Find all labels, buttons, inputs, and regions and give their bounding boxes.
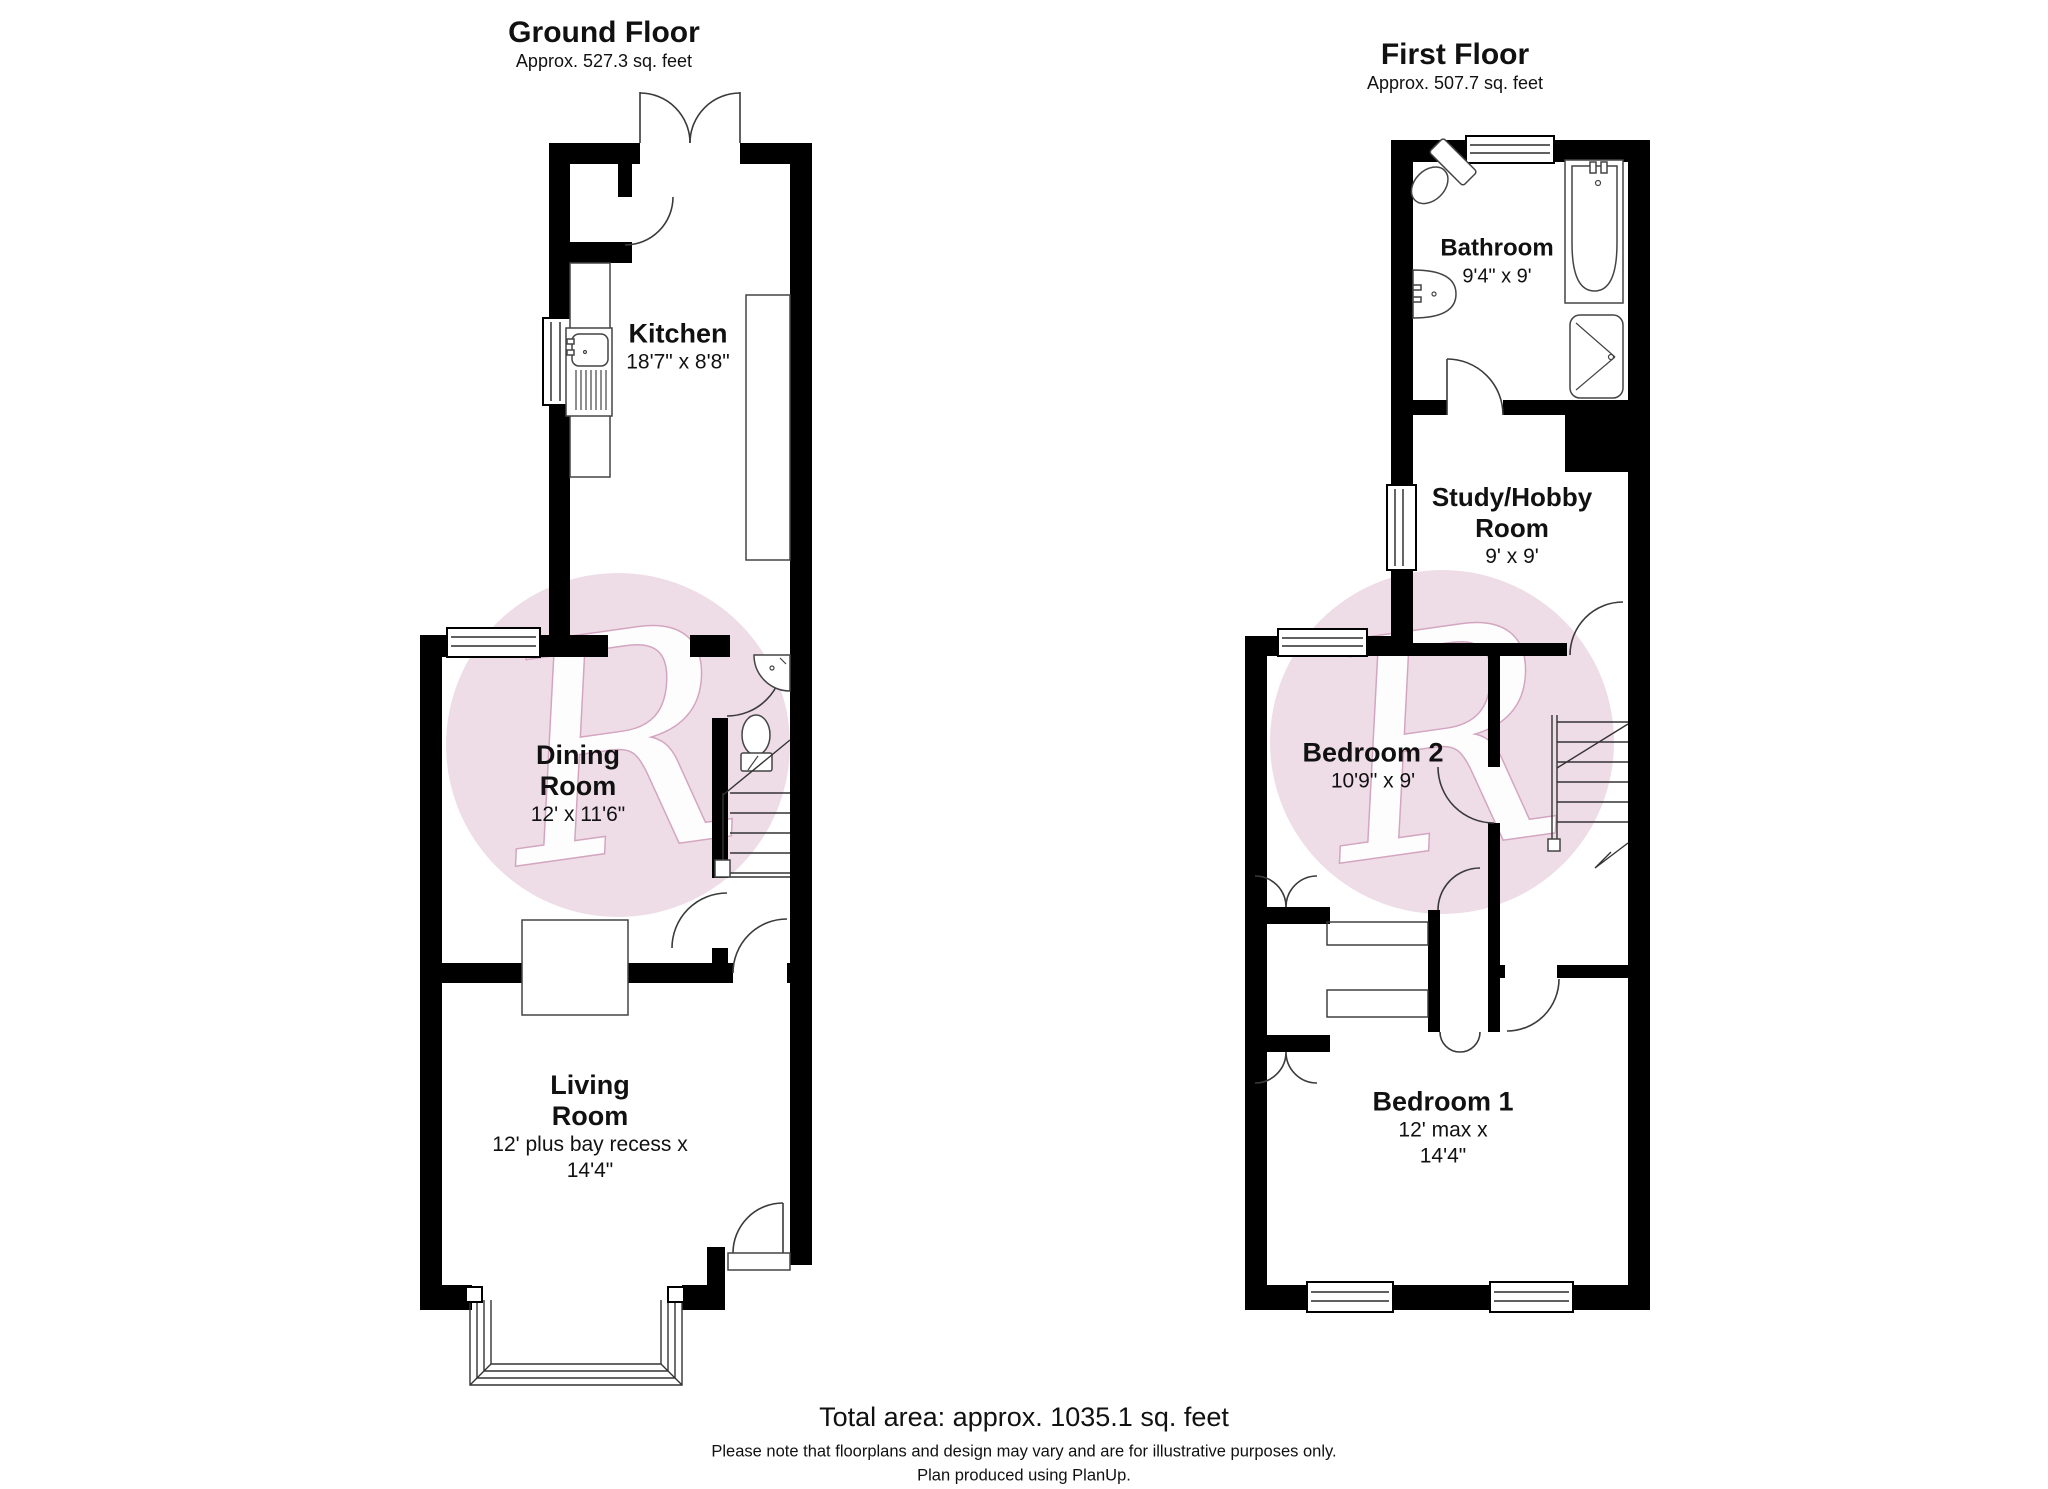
ground-floor-plan: R bbox=[420, 92, 812, 1385]
kitchen-counter-right bbox=[746, 295, 790, 560]
shower bbox=[1570, 315, 1623, 398]
fireplace bbox=[522, 920, 628, 1015]
wardrobes bbox=[1327, 922, 1428, 1017]
ground-floor-title: Ground Floor Approx. 527.3 sq. feet bbox=[508, 16, 700, 72]
floorplan-page: R bbox=[0, 0, 2048, 1489]
disclaimer-text: Please note that floorplans and design m… bbox=[711, 1441, 1336, 1464]
wc-toilet bbox=[741, 715, 772, 771]
room-label-study: Study/Hobby Room 9' x 9' bbox=[1407, 482, 1617, 570]
room-label-living: Living Room 12' plus bay recess x 14'4" bbox=[485, 1070, 695, 1184]
room-label-dining: Dining Room 12' x 11'6" bbox=[503, 740, 653, 828]
bath bbox=[1565, 160, 1623, 303]
total-area-text: Total area: approx. 1035.1 sq. feet bbox=[819, 1401, 1229, 1433]
room-label-kitchen: Kitchen 18'7" x 8'8" bbox=[626, 319, 730, 376]
first-floor-title: First Floor Approx. 507.7 sq. feet bbox=[1367, 38, 1543, 94]
room-label-bedroom1: Bedroom 1 12' max x 14'4" bbox=[1372, 1087, 1513, 1170]
floorplan-drawing: R bbox=[0, 0, 2048, 1489]
first-floor-title-text: First Floor bbox=[1367, 38, 1543, 72]
stairs-newel-ff bbox=[1548, 839, 1560, 851]
french-doors bbox=[640, 92, 740, 143]
room-label-bathroom: Bathroom 9'4" x 9' bbox=[1440, 233, 1553, 290]
ground-floor-area: Approx. 527.3 sq. feet bbox=[508, 50, 700, 72]
kitchen-sink bbox=[566, 328, 612, 416]
front-door-threshold bbox=[728, 1253, 790, 1270]
bay-window bbox=[466, 1287, 684, 1385]
first-floor-area: Approx. 507.7 sq. feet bbox=[1367, 72, 1543, 94]
ground-floor-title-text: Ground Floor bbox=[508, 16, 700, 50]
produced-by-text: Plan produced using PlanUp. bbox=[917, 1465, 1131, 1488]
stairs-newel bbox=[715, 860, 730, 877]
room-label-bedroom2: Bedroom 2 10'9" x 9' bbox=[1302, 738, 1443, 795]
